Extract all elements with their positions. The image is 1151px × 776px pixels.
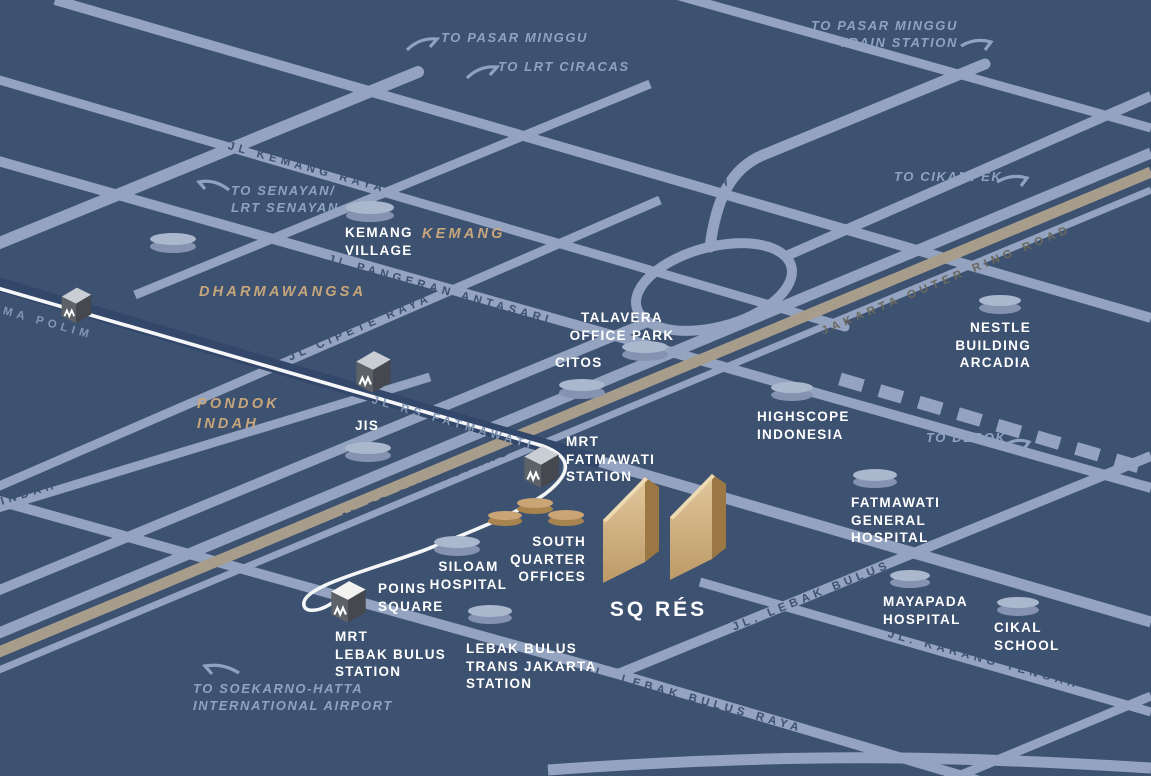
direction-airport: TO SOEKARNO-HATTA INTERNATIONAL AIRPORT [193, 681, 393, 715]
road-dashed-to-depok [840, 379, 1151, 473]
cylinder-top [346, 201, 394, 214]
landmark-mayapada [890, 570, 930, 595]
direction-lrt-ciracas: TO LRT CIRACAS [498, 59, 630, 76]
road-to-train-station [710, 64, 985, 247]
cylinder-top [548, 510, 584, 520]
sq-res-towers [603, 474, 726, 583]
direction-arrow-depok [1004, 434, 1032, 454]
label-talavera: TALAVERA OFFICE PARK [542, 309, 702, 344]
direction-arrow-lrt-ciracas [466, 62, 500, 82]
label-poins-square: POINS SQUARE [378, 580, 444, 615]
label-citos: CITOS [555, 354, 603, 372]
label-mrt-fatmawati: MRT FATMAWATI STATION [566, 433, 655, 486]
label-kemang-village: KEMANG VILLAGE [345, 224, 413, 259]
direction-arrow-senayan [196, 176, 230, 196]
cylinder-top [890, 570, 930, 581]
landmark-south-quarter-3 [548, 510, 584, 532]
area-kemang: KEMANG [422, 225, 506, 245]
mrt-station-marker-fatmawati [520, 443, 562, 496]
cylinder-top [853, 469, 897, 481]
road-bottom [548, 758, 1151, 770]
cylinder-top [468, 605, 512, 617]
label-jis: JIS [355, 417, 379, 435]
landmark-citos [559, 379, 605, 407]
label-cikal: CIKAL SCHOOL [994, 619, 1060, 654]
direction-arrow-airport [202, 660, 240, 680]
direction-senayan: TO SENAYAN/ LRT SENAYAN [231, 183, 339, 217]
direction-pasar-minggu: TO PASAR MINGGU [441, 30, 588, 47]
label-mayapada: MAYAPADA HOSPITAL [883, 593, 968, 628]
label-highscope: HIGHSCOPE INDONESIA [757, 408, 850, 443]
label-fatmawati-general: FATMAWATI GENERAL HOSPITAL [851, 494, 940, 547]
sq-res-tower-1-side [645, 477, 659, 562]
sq-res-tower-2-side [712, 474, 726, 559]
mrt-station-marker-lebak-bulus [327, 578, 369, 631]
label-nestle: NESTLE BUILDING ARCADIA [946, 319, 1031, 372]
landmark-unnamed [150, 233, 196, 261]
label-sq-res: SQ RÉS [586, 596, 731, 623]
area-pondok-indah: PONDOK INDAH [197, 395, 280, 434]
landmark-jis [345, 442, 391, 470]
area-dharmawangsa: DHARMAWANGSA [199, 283, 366, 303]
landmark-transjakarta [468, 605, 512, 632]
landmark-talavera [622, 341, 668, 369]
direction-pasar-minggu-train: TO PASAR MINGGU TRAIN STATION [795, 18, 958, 52]
direction-depok: TO DEPOK [926, 430, 1006, 447]
label-lebak-bulus-transjakarta: LEBAK BULUS TRANS JAKARTA STATION [466, 640, 597, 693]
sq-res-tower-1 [603, 477, 645, 583]
direction-cikampek: TO CIKAMPEK [894, 169, 1002, 186]
direction-arrow-pasar-minggu [406, 34, 440, 54]
landmark-highscope [771, 382, 813, 408]
direction-arrow-train-station [960, 34, 994, 54]
label-mrt-lebak-bulus: MRT LEBAK BULUS STATION [335, 628, 446, 681]
landmark-nestle [979, 295, 1021, 321]
cylinder-top [517, 498, 553, 508]
landmark-fatmawati-general [853, 469, 897, 496]
map-canvas: JL KEMANG RAYA JL AMPERA RAYA JL PANGERA… [0, 0, 1151, 776]
